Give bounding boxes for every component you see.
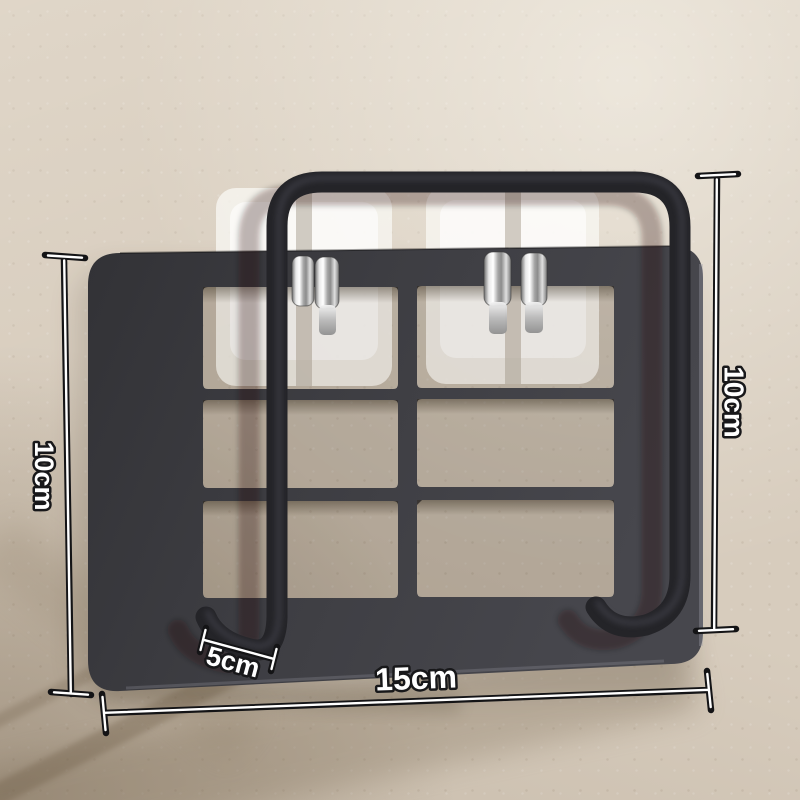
hook-band [315, 257, 339, 309]
window-top-shadow [203, 501, 398, 516]
window-top-shadow [417, 286, 614, 302]
window-top-shadow [417, 399, 614, 414]
hook-band [484, 252, 511, 306]
window-top-shadow [417, 500, 614, 515]
hook-band [292, 256, 314, 306]
hook-tab [489, 302, 507, 334]
dimension-label-height-left: 10cm [29, 441, 59, 510]
dimension-label-width-bottom: 15cm [374, 658, 457, 697]
hook-tab [319, 305, 336, 335]
hook-band [521, 253, 547, 306]
window-top-shadow [203, 400, 398, 415]
chrome-hook-clip [292, 256, 314, 306]
product-photo-scene: 10cm 10cm 15cm 5cm [0, 0, 800, 800]
hook-tab [525, 302, 543, 333]
dimension-label-height-right: 10cm [719, 366, 750, 438]
product-illustration: 10cm 10cm 15cm 5cm [0, 0, 800, 800]
